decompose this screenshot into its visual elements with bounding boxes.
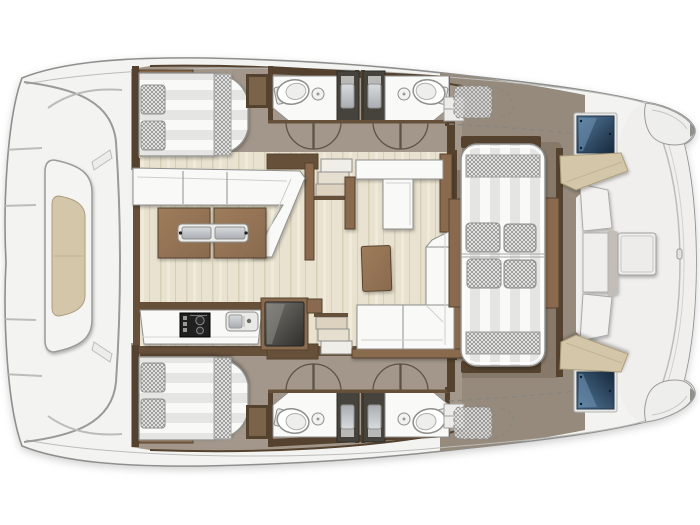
table-handle (215, 227, 245, 239)
floor-plan-image (0, 0, 700, 525)
cockpit-lounger (461, 144, 545, 366)
bed-pillow (141, 85, 165, 114)
nav-seat-panel (345, 177, 355, 229)
shower-column (368, 84, 381, 108)
stove-knob (183, 322, 187, 326)
sink-drain (317, 93, 320, 96)
wardrobe-door (249, 77, 266, 105)
lounger-pillow (504, 260, 536, 288)
coffee-table (361, 245, 392, 291)
lounger-side-rail (449, 199, 461, 307)
bench-panel (583, 233, 608, 292)
engine-hatch (574, 113, 617, 156)
galley-sink (226, 312, 258, 331)
bathroom-front-wall (268, 120, 450, 124)
bench-panel (580, 294, 612, 341)
table-handle (182, 227, 211, 239)
bench-panel (580, 184, 612, 231)
bed-pillow (141, 121, 165, 150)
step (316, 184, 347, 196)
step (321, 159, 352, 172)
bow-sun-lounger (45, 160, 92, 352)
hatch-hinge (580, 120, 582, 122)
galley-backsplash (140, 302, 262, 310)
bed-runner (214, 74, 231, 155)
table-pin (244, 231, 247, 234)
stove (180, 313, 210, 337)
burner (196, 316, 204, 324)
lounger-pillow (466, 223, 500, 252)
transom-cleat (677, 249, 682, 259)
lounger-side-rail (544, 198, 559, 308)
sink-drain (403, 93, 406, 96)
cockpit-lounge (449, 136, 559, 373)
shower-head-box (368, 76, 381, 84)
lounger-headrest (466, 155, 540, 177)
dinette-side-panel (305, 163, 314, 260)
galley (140, 298, 322, 350)
aft-sofa-panel (352, 349, 462, 358)
bathroom-wall (268, 66, 273, 123)
dashed-storage-locker (454, 86, 492, 118)
transom-locker (618, 233, 656, 275)
lounger-headrest (466, 332, 540, 354)
step-base (314, 196, 348, 200)
bench-channel (608, 228, 618, 297)
hatch-hinge (580, 147, 582, 149)
shower-head-box (341, 76, 354, 84)
nav-seat-back (356, 160, 443, 179)
nav-seat-cushion (383, 179, 413, 229)
faucet (247, 319, 251, 323)
cabin-headboard-wall (132, 66, 139, 168)
stove-knob (183, 328, 187, 332)
floor-plan-canvas (0, 0, 700, 525)
stove-knob (183, 316, 187, 320)
galley-shelf (307, 299, 322, 313)
table-pin (179, 231, 182, 234)
lounger-pillow (504, 224, 536, 252)
cabin-bed (139, 73, 248, 156)
lounger-pillow (467, 259, 501, 288)
step (318, 172, 349, 184)
sink-basin (229, 315, 242, 328)
shower-column (341, 84, 354, 108)
burner (197, 327, 204, 334)
hatch-latch (609, 133, 611, 135)
